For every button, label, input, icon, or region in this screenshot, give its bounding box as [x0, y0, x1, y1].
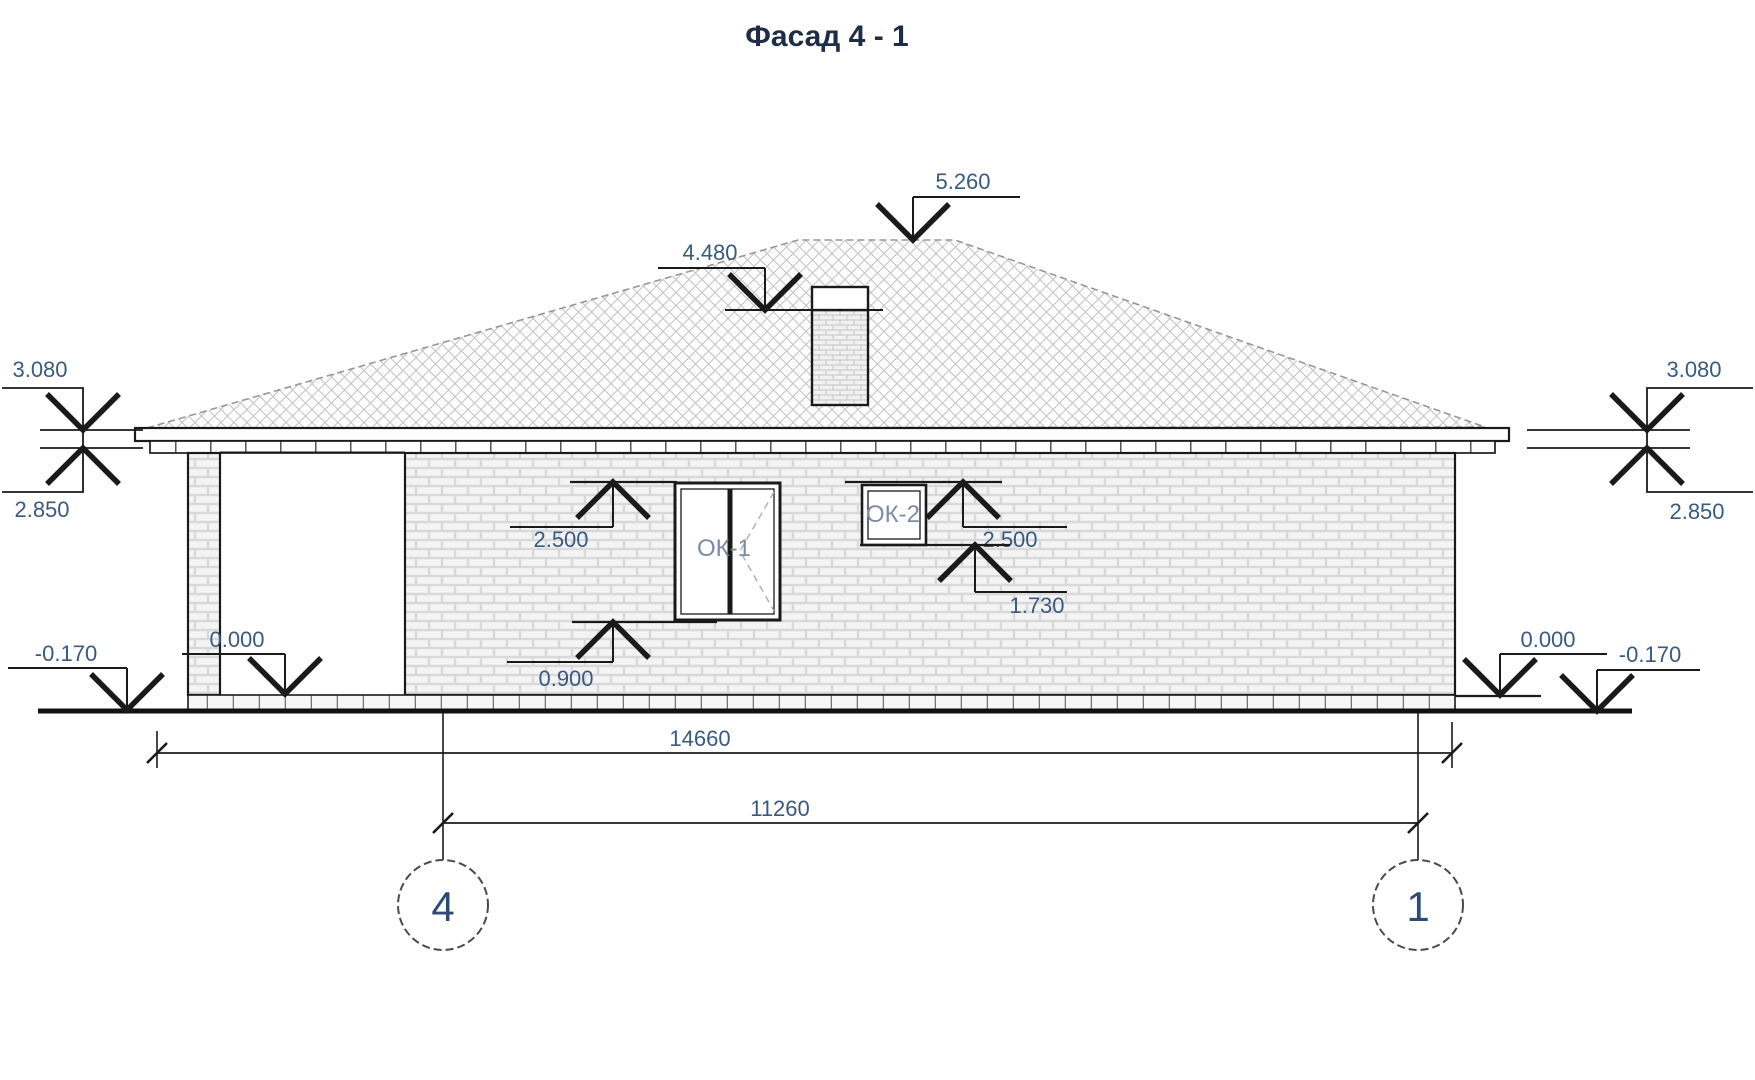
window-ok1-label: ОК-1	[697, 535, 751, 562]
elevation-mark-right-eaves: 3.080 2.850	[1527, 357, 1753, 524]
elevation-mark-right-floor: 0.000	[1455, 627, 1607, 696]
elevation-mark-left-eaves: 3.080 2.850	[2, 357, 143, 522]
walls	[38, 453, 1632, 712]
drawing-sheet: Фасад 4 - 1 ОК-1 ОК-2	[0, 0, 1755, 1080]
axis-bubble-1: 1	[1373, 860, 1463, 950]
window-ok2-label: ОК-2	[866, 501, 920, 528]
soffit-band	[150, 441, 1495, 453]
chimney-body	[812, 310, 868, 405]
elevation-mark-right-walltop-label: 2.850	[1669, 499, 1724, 524]
elevation-mark-ridge: 5.260	[877, 169, 1020, 240]
main-wall	[405, 453, 1455, 695]
elevation-mark-ok1-sill-label: 0.900	[538, 666, 593, 691]
window-ok1: ОК-1	[675, 483, 780, 620]
elevation-mark-left-ground: -0.170	[8, 641, 163, 710]
elevation-mark-left-floor-label: 0.000	[209, 627, 264, 652]
elevation-mark-ok1-head-label: 2.500	[533, 527, 588, 552]
dimension-overall-label: 14660	[669, 726, 730, 751]
elevation-mark-left-walltop-label: 2.850	[14, 497, 69, 522]
elevation-mark-right-fascia-label: 3.080	[1666, 357, 1721, 382]
elevation-mark-right-floor-label: 0.000	[1520, 627, 1575, 652]
fascia-band	[135, 428, 1509, 441]
axis-bubble-4-label: 4	[431, 883, 454, 930]
roof	[135, 240, 1509, 453]
facade-elevation-drawing: Фасад 4 - 1 ОК-1 ОК-2	[0, 0, 1755, 1080]
elevation-mark-right-ground-label: -0.170	[1619, 642, 1681, 667]
drawing-title: Фасад 4 - 1	[745, 20, 908, 53]
axis-bubble-4: 4	[398, 860, 488, 950]
dimension-axis-span: 11260	[433, 713, 1428, 860]
elevation-mark-chimney-label: 4.480	[682, 240, 737, 265]
elevation-mark-ridge-label: 5.260	[935, 169, 990, 194]
elevation-mark-ok2-sill-label: 1.730	[1009, 593, 1064, 618]
plinth-tiles	[188, 695, 1455, 710]
elevation-mark-left-fascia-label: 3.080	[12, 357, 67, 382]
elevation-mark-right-ground: -0.170	[1561, 642, 1700, 711]
axis-bubble-1-label: 1	[1406, 883, 1429, 930]
chimney-cap-band	[812, 287, 868, 310]
elevation-mark-ok2-head-label: 2.500	[982, 527, 1037, 552]
dimension-axis-span-label: 11260	[750, 796, 810, 821]
porch-post	[188, 453, 220, 695]
dimension-overall: 14660	[147, 722, 1462, 768]
window-ok2: ОК-2	[862, 485, 926, 545]
elevation-mark-left-ground-label: -0.170	[35, 641, 97, 666]
chimney	[812, 287, 868, 405]
